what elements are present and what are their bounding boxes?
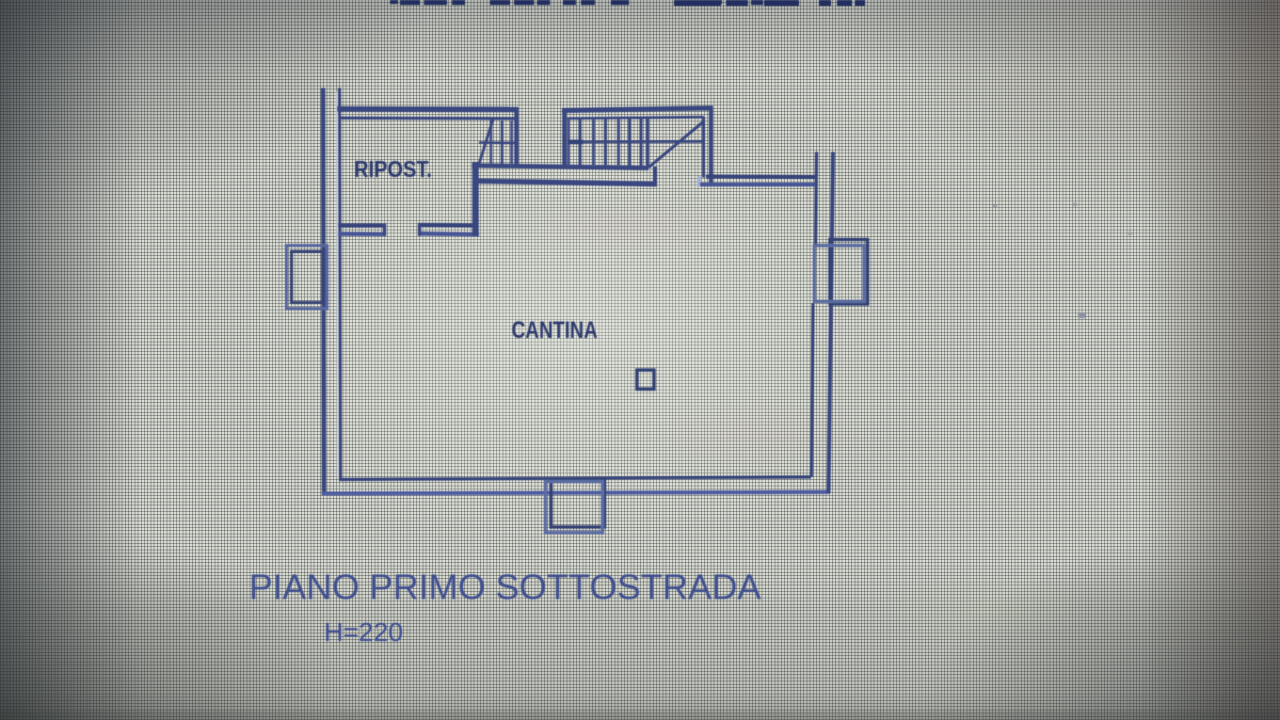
svg-text:RIPOST.: RIPOST.	[354, 156, 432, 182]
svg-text:PIANO PRIMO SOTTOSTRADA: PIANO PRIMO SOTTOSTRADA	[249, 568, 762, 607]
svg-text:CANTINA: CANTINA	[512, 317, 598, 344]
svg-text:H=220: H=220	[324, 617, 403, 647]
